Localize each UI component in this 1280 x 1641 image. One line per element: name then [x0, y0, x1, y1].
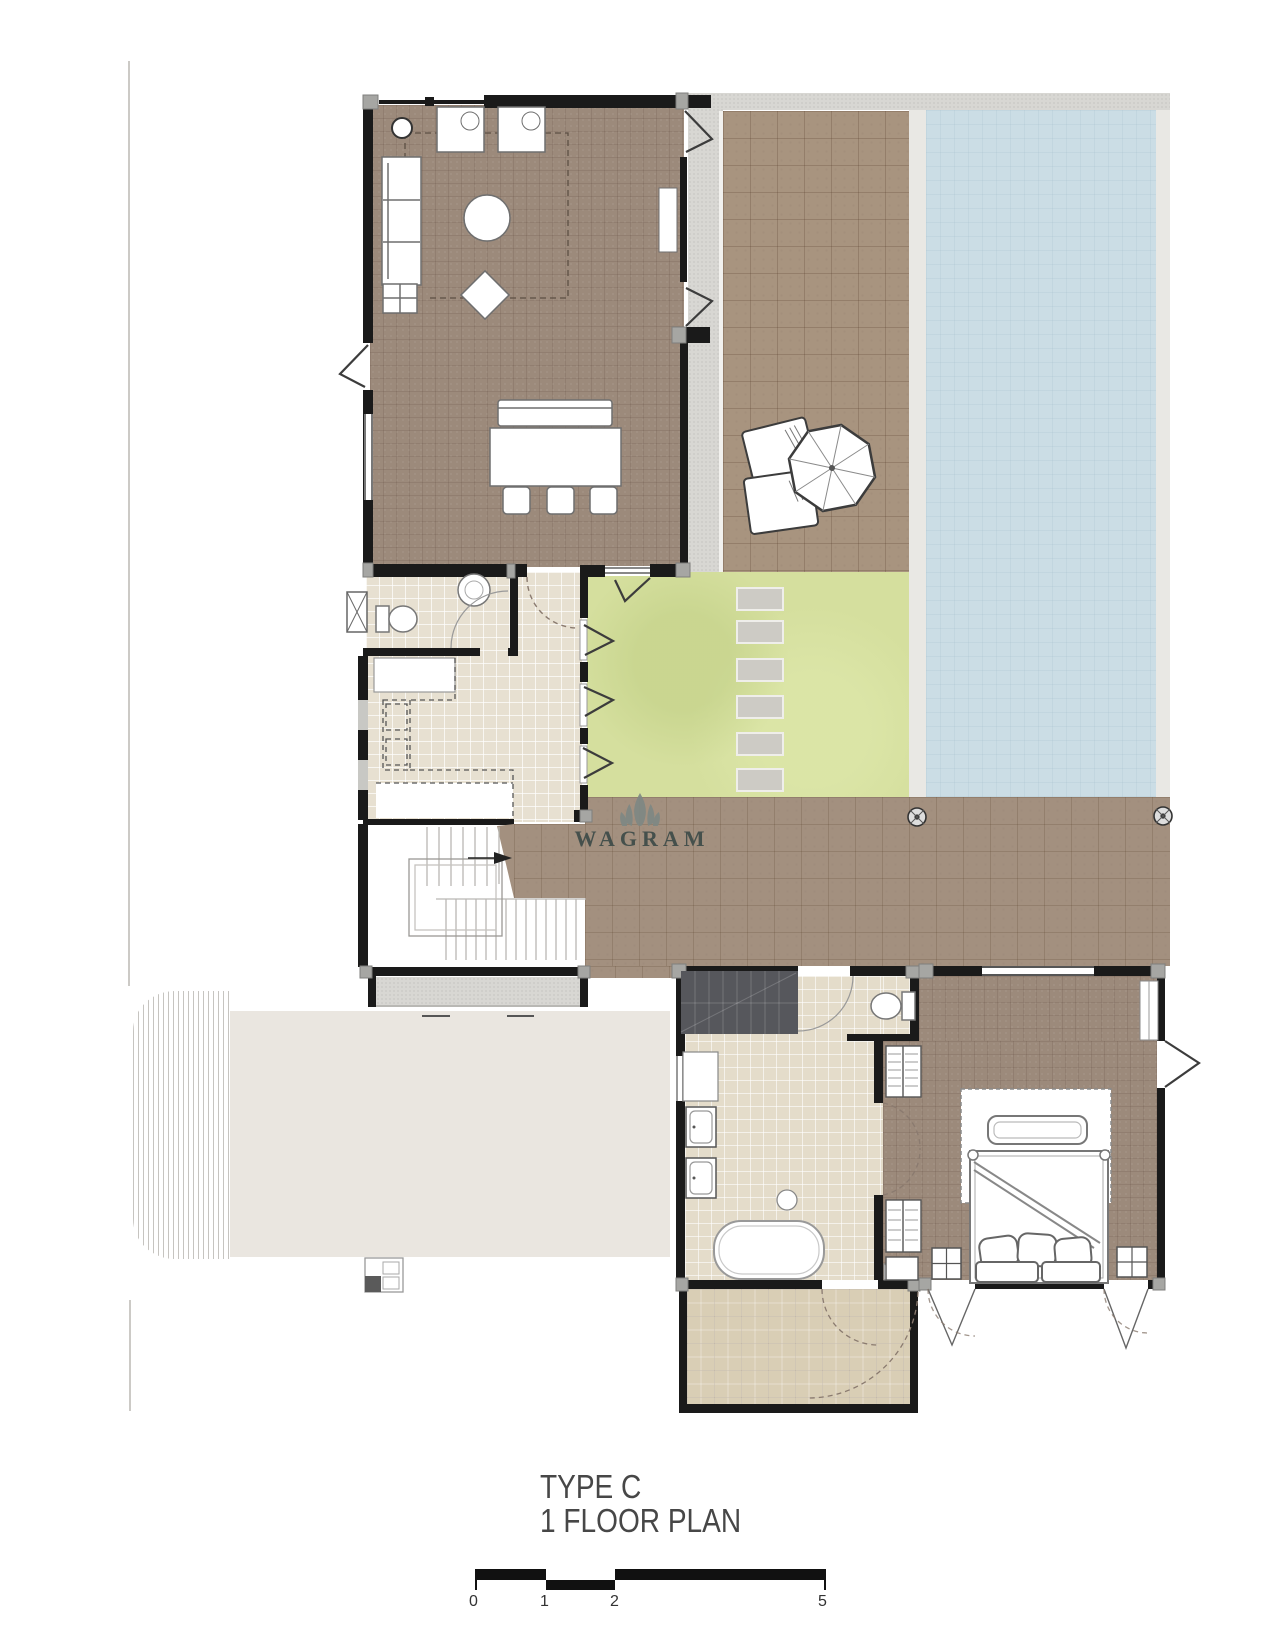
svg-text:WAGRAM: WAGRAM — [574, 826, 709, 851]
